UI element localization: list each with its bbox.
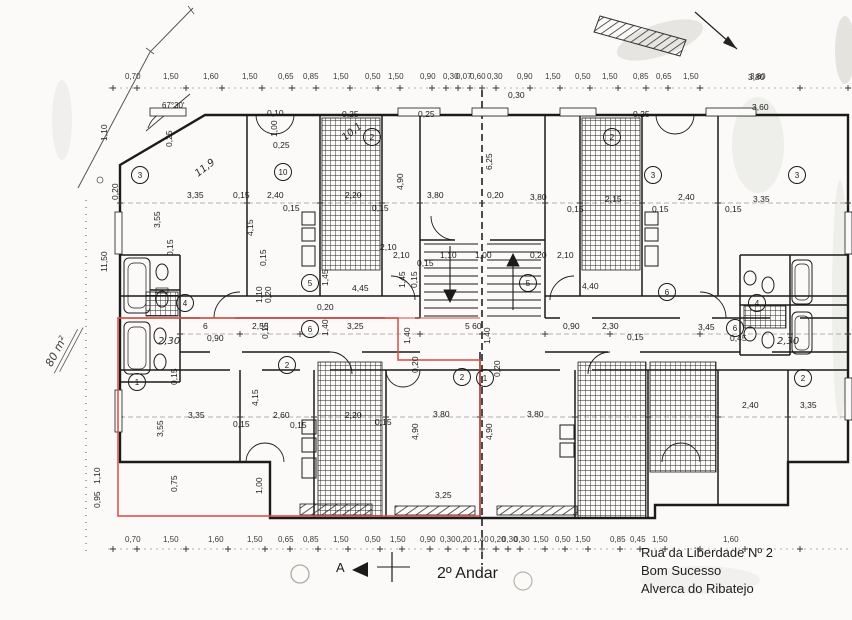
dimension-label: 0,85 [633,72,649,81]
dimension-label: 0,15 [260,322,270,339]
dimension-label: 0,85 [303,72,319,81]
dimension-label: 2,30 [602,321,619,331]
address-line-2: Bom Sucesso [641,563,721,578]
window [115,212,122,254]
bottom-dimension-row: 0,701,501,601,500,650,851,500,501,500,90… [125,535,739,544]
dimension-label: 2,20 [345,410,362,420]
dimension-label: 4,45 [352,283,369,293]
dimension-label: 5 60 [465,321,482,331]
room-tag-number: 2 [610,133,615,142]
section-marker: A [336,552,410,582]
sink-icon [156,264,168,280]
kitchen-appliance [302,246,315,266]
dimension-label: 0,60 [470,72,486,81]
dimension-label: 2,15 [605,194,622,204]
dimension-label: 0,25 [418,109,435,119]
dimension-label: 0,90 [420,72,436,81]
entrance-stair-hatch [594,12,737,56]
dimension-label: 0,45 [630,535,646,544]
room-tag-number: 1 [135,378,140,387]
kitchen-tile-lower-left [318,362,382,518]
dimension-label: 3,80 [530,192,547,202]
dimension-label: 2,10 [557,250,574,260]
toilet-icon [762,332,774,348]
dimension-label: 0,75 [169,475,179,492]
dimension-label: 0,25 [633,109,650,119]
dimension-label: 1,50 [533,535,549,544]
toilet-icon [154,354,166,370]
dimension-label: 0,15 [375,417,392,427]
dimension-label: 1,50 [545,72,561,81]
room-tag-number: 6 [308,325,313,334]
dimension-label: 0,15 [652,204,669,214]
sink-icon [744,271,756,285]
dimension-label: 4,90 [395,173,405,190]
dimension-label: 0,20 [456,535,472,544]
dimension-label: 1,40 [473,535,489,544]
balcony-double-door [656,115,694,134]
section-arrow-icon [352,562,368,577]
dimension-label: 0,15 [233,190,250,200]
kitchen-appliance [302,228,315,241]
room-tag-number: 6 [665,288,670,297]
dimension-label: 0,15 [165,239,175,256]
dimension-label: 3,35 [188,410,205,420]
dimension-label: 1,50 [163,535,179,544]
dimension-label: 1,00 [254,477,264,494]
dimension-label: 1,10 [99,124,109,141]
dimension-label: 0,20 [263,286,273,303]
room-tag: 10 [275,164,292,181]
room-tag-number: 3 [138,171,143,180]
room-tag-number: 3 [651,171,656,180]
dimension-label: 0,15 [627,332,644,342]
handwritten-area-label: 2,30 [158,336,180,347]
balcony-rail [395,506,475,515]
dimension-label: 1,60 [723,535,739,544]
dimension-label: 0,15 [283,203,300,213]
dimension-label: 0,70 [125,72,141,81]
window [845,378,852,420]
window [150,108,186,116]
dimension-label: 0,30 [508,90,525,100]
room-tag-number: 5 [526,279,531,288]
room-tag: 3 [132,167,149,184]
dimension-label: 1,50 [333,535,349,544]
room-tag-number: 6 [733,324,738,333]
section-marker-letter: A [336,560,345,575]
dimension-label: 0,65 [656,72,672,81]
dimension-label: 3,80 [427,190,444,200]
dimension-label: 1,50 [602,72,618,81]
dimension-label: 0,90 [207,333,224,343]
dimension-label: 0,90 [563,321,580,331]
dimension-label: 4,90 [410,423,420,440]
room-tag-number: 1 [483,374,488,383]
dimension-label: 0,15 [409,271,419,288]
dimension-label: 1,40 [320,319,330,336]
room-tag: 6 [659,284,676,301]
room-tag: 3 [645,167,662,184]
dimension-label: 2,20 [345,190,362,200]
dimension-label: 1,40 [402,327,412,344]
dimension-label: 0,20 [530,250,547,260]
dimension-label: 0,65 [278,535,294,544]
dimension-label: 0,45 [730,333,747,343]
dimension-label: 0,20 [317,302,334,312]
room-tag-number: 10 [279,168,288,177]
dimension-label: 1,40 [482,327,492,344]
dimension-label: 0,20 [487,190,504,200]
room-tag: 2 [279,357,296,374]
dimension-label: 2,10 [393,250,410,260]
dimension-label: 0,25 [164,130,174,147]
dimension-label: 2,60 [273,410,290,420]
room-tag: 2 [795,370,812,387]
dimension-label: 1,50 [247,535,263,544]
dimension-label: 0,90 [517,72,533,81]
dimension-label: 4,40 [582,281,599,291]
dimension-label: 0,50 [365,535,381,544]
area-annotation: 80 m² [41,319,83,376]
dimension-label: 4,15 [245,219,255,236]
room-tag: 2 [454,369,471,386]
dimension-label: 2,40 [267,190,284,200]
dimension-label: 1,50 [683,72,699,81]
dimension-label: 1,10 [440,250,457,260]
room-tag-number: 2 [460,373,465,382]
dimension-label: 1,45 [397,271,407,288]
door-arc [431,216,455,240]
dimension-label: 1,00 [475,250,492,260]
dimension-label: 2,40 [678,192,695,202]
dimension-label: 0,65 [278,72,294,81]
room-tag: 3 [789,167,806,184]
dimension-label: 11,50 [99,251,109,272]
room-number-tags: 3102233556661221442 [129,129,812,391]
dimension-label: 0,20 [110,183,120,200]
dimension-label: 3,60 [752,102,769,112]
dimension-label: 3,35 [753,194,770,204]
dimension-label: 1,50 [388,72,404,81]
dimension-label: 3,35 [800,400,817,410]
dimension-label: 1,50 [333,72,349,81]
dimension-label: 0,50 [555,535,571,544]
kitchen-appliance [560,443,574,457]
dimension-label: 2,40 [742,400,759,410]
dimension-label: 0,70 [125,535,141,544]
dimension-label: 0,10 [267,108,284,118]
room-tag-number: 5 [308,279,313,288]
dimension-label: 0,95 [92,491,102,508]
dimension-label: 1,50 [390,535,406,544]
dimension-label: 3,55 [152,211,162,228]
dimension-label: 3,80 [527,409,544,419]
floor-title: 2º Andar [437,565,499,582]
dimension-label: 4,90 [484,423,494,440]
dimension-label: 0,15 [290,420,307,430]
top-dimension-row: 0,701,501,601,500,650,851,500,501,500,90… [125,72,766,81]
window [560,108,596,116]
handwritten-area-label: 2,30 [777,336,799,347]
dimension-label: 3,35 [187,190,204,200]
dimension-label: 6 [203,321,208,331]
dimension-label: 0,15 [372,203,389,213]
room-tag: 6 [302,321,319,338]
dimension-label: 0,15 [567,204,584,214]
kitchen-appliance [302,212,315,225]
room-tag-number: 4 [183,299,188,308]
room-tag-number: 2 [370,133,375,142]
balcony-double-door [246,443,284,462]
room-tag: 1 [477,370,494,387]
handwritten-area-label: 11,9 [193,157,217,179]
dimension-label: 0,50 [575,72,591,81]
room-tag-number: 2 [285,361,290,370]
dimension-label: 1,00 [269,120,279,137]
room-tag-number: 2 [801,374,806,383]
dimension-label: 0,85 [303,535,319,544]
dimension-label: 6,25 [484,153,494,170]
dimension-label: 0,15 [417,258,434,268]
address-block: Rua da Liberdade Nº 2 Bom Sucesso Alverc… [641,545,773,596]
dimension-label: 0,25 [273,140,290,150]
dimension-label: 3,45 [698,322,715,332]
dimension-label: 0,30 [440,535,456,544]
dimension-label: 3,25 [347,321,364,331]
dimension-label: 3,55 [155,420,165,437]
kitchen-tile-lower-right [578,362,646,518]
address-line-1: Rua da Liberdade Nº 2 [641,545,773,560]
floor-plan-drawing: 67°30' [0,0,852,620]
dimension-label: 0,50 [365,72,381,81]
dimension-label: 0,85 [610,535,626,544]
balcony-rail [300,504,372,515]
balcony-rail [497,506,577,515]
floor-plan-sheet: 67°30' [0,0,852,620]
bath-tile-right [744,306,786,328]
room-tag: 5 [520,275,537,292]
toilet-icon [762,277,774,293]
kitchen-appliance [560,425,574,439]
dimension-label: 0,30 [487,72,503,81]
dimension-label: 0,30 [514,535,530,544]
dimension-label: 0,15 [725,204,742,214]
dimension-label: 3,80 [748,72,765,82]
address-line-3: Alverca do Ribatejo [641,581,754,596]
room-tag-number: 3 [795,171,800,180]
dimension-label: 3,25 [435,490,452,500]
dimension-label: 0,15 [233,419,250,429]
dimension-label: 0,20 [410,356,420,373]
dimension-label: 0,20 [492,360,502,377]
dimension-label: 0,15 [258,249,268,266]
kitchen-appliance [645,246,658,266]
dimension-label: 0,15 [169,368,179,385]
dimension-label: 1,50 [242,72,258,81]
dimension-label: 1,60 [208,535,224,544]
dimension-label: 1,10 [92,467,102,484]
room-tag: 4 [177,295,194,312]
dimension-label: 0,90 [420,535,436,544]
room-tag: 5 [302,275,319,292]
room-tag-number: 4 [755,299,760,308]
dimension-label: 1,50 [575,535,591,544]
dimension-label: 4,15 [250,389,260,406]
dimension-label: 0,25 [342,109,359,119]
dimension-label: 1,50 [163,72,179,81]
dimension-label: 3,80 [433,409,450,419]
window [472,108,508,116]
dimension-label: 1,50 [652,535,668,544]
dimension-label: 1,45 [320,269,330,286]
window [845,212,852,254]
dimension-label: 1,60 [203,72,219,81]
window [706,108,756,116]
kitchen-appliance [645,228,658,241]
